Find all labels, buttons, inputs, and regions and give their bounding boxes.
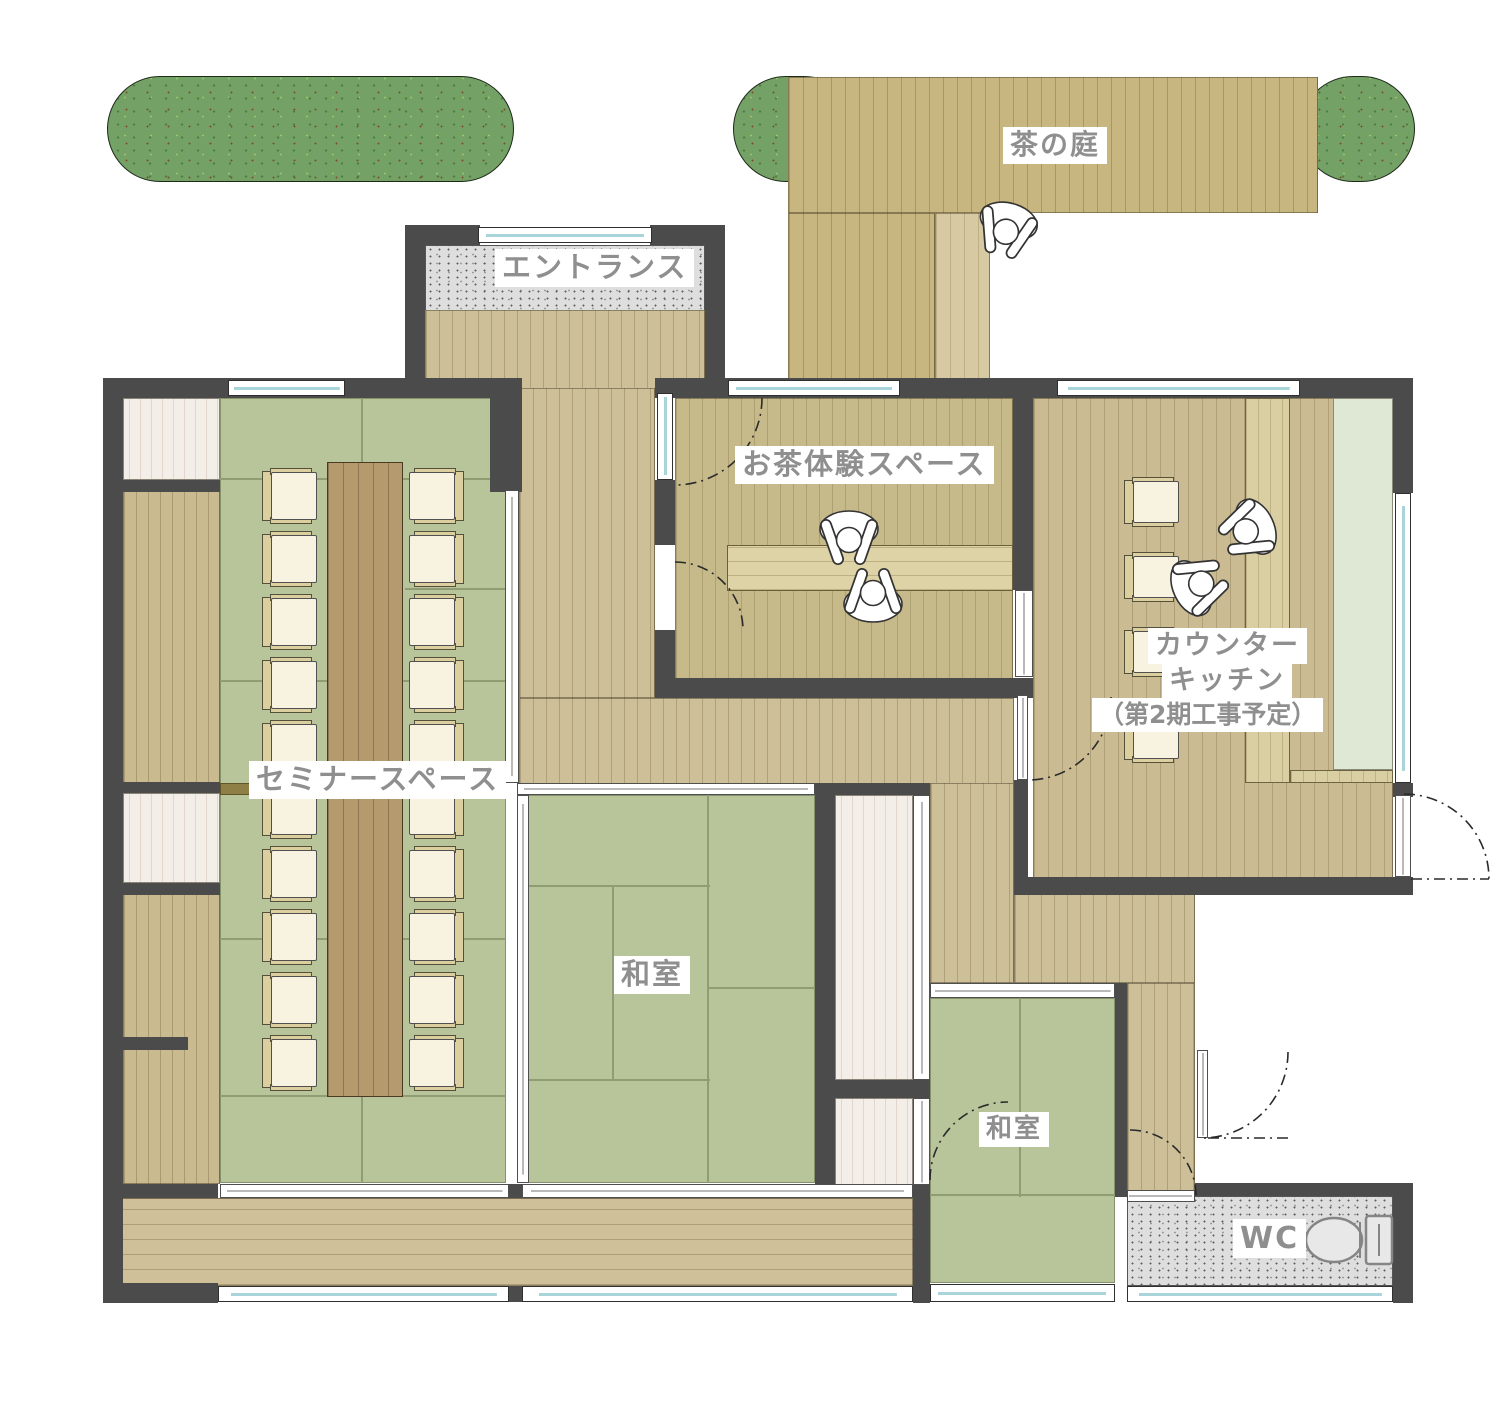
hall-corridor-a [930, 783, 1014, 983]
wall [650, 225, 725, 245]
door-arc-kitchen-exterior [1404, 794, 1489, 879]
sliding-door-track [1197, 1050, 1208, 1138]
wall [655, 678, 1033, 698]
chair-seat [271, 913, 317, 961]
wall [123, 883, 220, 895]
wall [103, 1283, 218, 1303]
tatami-line [707, 795, 709, 1183]
wall [655, 480, 675, 545]
seminar-chair-left [262, 846, 320, 902]
window [930, 1284, 1115, 1302]
seminar-chair-right [406, 531, 464, 587]
label-washitsu-main: 和室 [614, 956, 690, 994]
sliding-door-track [913, 795, 930, 1080]
seminar-chair-left [262, 468, 320, 524]
closet-2 [835, 1098, 913, 1185]
seminar-chair-left [262, 594, 320, 650]
seminar-chair-right [406, 468, 464, 524]
sliding-door-track [517, 795, 529, 1183]
window [522, 1286, 913, 1302]
label-tea-space: お茶体験スペース [735, 446, 994, 484]
chair-seat [271, 1039, 317, 1087]
door-arc-back-entrance [1202, 1052, 1288, 1138]
wall [1195, 1183, 1413, 1196]
wall [123, 480, 220, 492]
chair-seat [271, 598, 317, 646]
window [1057, 380, 1300, 396]
label-counter-1: カウンター [1148, 628, 1307, 664]
seminar-chair-left [262, 909, 320, 965]
chair-seat [409, 472, 455, 520]
tatami-line [1019, 998, 1021, 1197]
hall-corridor-b [1014, 893, 1195, 983]
window [1127, 1286, 1393, 1302]
engawa-deck [120, 1198, 913, 1286]
wall [123, 782, 220, 793]
wall [103, 378, 123, 1303]
sliding-door-track [522, 1184, 913, 1198]
chair-seat [1133, 556, 1179, 598]
closet-1 [835, 795, 913, 1080]
sliding-door-track [1017, 695, 1028, 780]
chair-seat [271, 472, 317, 520]
seminar-chair-left [262, 657, 320, 713]
hedge-top-left [107, 76, 514, 182]
label-entrance: エントランス [495, 249, 694, 287]
hall-wrap-floor [519, 698, 1014, 784]
wall [1393, 378, 1413, 493]
wall [655, 630, 675, 698]
tatami-line [361, 1095, 363, 1183]
sliding-door-track [913, 1098, 930, 1185]
seminar-chair-left [262, 972, 320, 1028]
label-counter-3: （第2期工事予定） [1092, 698, 1323, 732]
seminar-chair-left [262, 531, 320, 587]
wall [1393, 1183, 1413, 1303]
garden-deck-leg [788, 213, 935, 380]
tatami-line [708, 987, 815, 989]
kitchen-stool [1124, 552, 1182, 602]
kitchen-counter-return [1290, 770, 1393, 783]
chair-seat [409, 976, 455, 1024]
chair-seat [409, 850, 455, 898]
wall [835, 1080, 930, 1098]
kitchen-phase2-zone [1333, 398, 1393, 770]
window [218, 1286, 509, 1302]
window [728, 380, 900, 396]
seminar-chair-right [406, 972, 464, 1028]
seminar-chair-left [262, 1035, 320, 1091]
seminar-chair-right [406, 657, 464, 713]
chair-seat [409, 913, 455, 961]
wall [120, 1184, 218, 1198]
chair-seat [271, 535, 317, 583]
seminar-chair-right [406, 909, 464, 965]
tatami-line [930, 1194, 1115, 1196]
chair-seat [271, 850, 317, 898]
chair-seat [271, 976, 317, 1024]
seminar-chair-right [406, 1035, 464, 1091]
label-wc: WC [1233, 1219, 1306, 1258]
wall [405, 225, 425, 390]
wall [405, 225, 480, 245]
tea-table [727, 545, 1013, 591]
chair-seat [409, 598, 455, 646]
sliding-door-track [517, 783, 815, 795]
label-garden: 茶の庭 [1003, 127, 1107, 164]
wall [1022, 877, 1413, 895]
sliding-door-track [930, 983, 1115, 998]
window [478, 227, 652, 243]
sliding-door-track [220, 1184, 509, 1198]
hall-main-floor [519, 388, 655, 698]
garden-deck-step [935, 213, 990, 380]
wall [815, 783, 835, 1198]
sliding-door-track [1127, 1190, 1195, 1202]
wall [835, 783, 930, 795]
wall [103, 1037, 188, 1050]
tatami-line [405, 588, 506, 590]
window [1395, 493, 1411, 783]
hall-corridor-c [1127, 983, 1195, 1192]
sliding-door-track [505, 490, 519, 783]
seminar-alcove-1 [123, 398, 220, 480]
sliding-door-track [1395, 795, 1411, 877]
wall [1013, 398, 1033, 590]
wall [705, 225, 725, 390]
chair-seat [409, 1039, 455, 1087]
seminar-chair-right [406, 846, 464, 902]
tea-room-floor [675, 398, 1013, 680]
window [657, 393, 673, 480]
chair-seat [409, 661, 455, 709]
label-counter-2: キッチン [1162, 663, 1292, 699]
wall [1115, 983, 1127, 1197]
label-washitsu-small: 和室 [979, 1112, 1049, 1147]
label-seminar: セミナースペース [249, 761, 506, 799]
wall [913, 1197, 930, 1303]
wall [1014, 780, 1028, 895]
wall [509, 1184, 522, 1198]
wall [509, 1286, 522, 1302]
chair-seat [1133, 481, 1179, 523]
sliding-door-track [1015, 590, 1033, 677]
wall [490, 378, 522, 492]
chair-seat [409, 535, 455, 583]
kitchen-stool [1124, 477, 1182, 527]
chair-seat [271, 661, 317, 709]
seminar-alcove-2 [123, 793, 220, 883]
seminar-chair-right [406, 594, 464, 650]
window [228, 380, 345, 396]
floor-plan-canvas: 茶の庭 エントランス お茶体験スペース カウンター キッチン （第2期工事予定）… [0, 0, 1510, 1404]
